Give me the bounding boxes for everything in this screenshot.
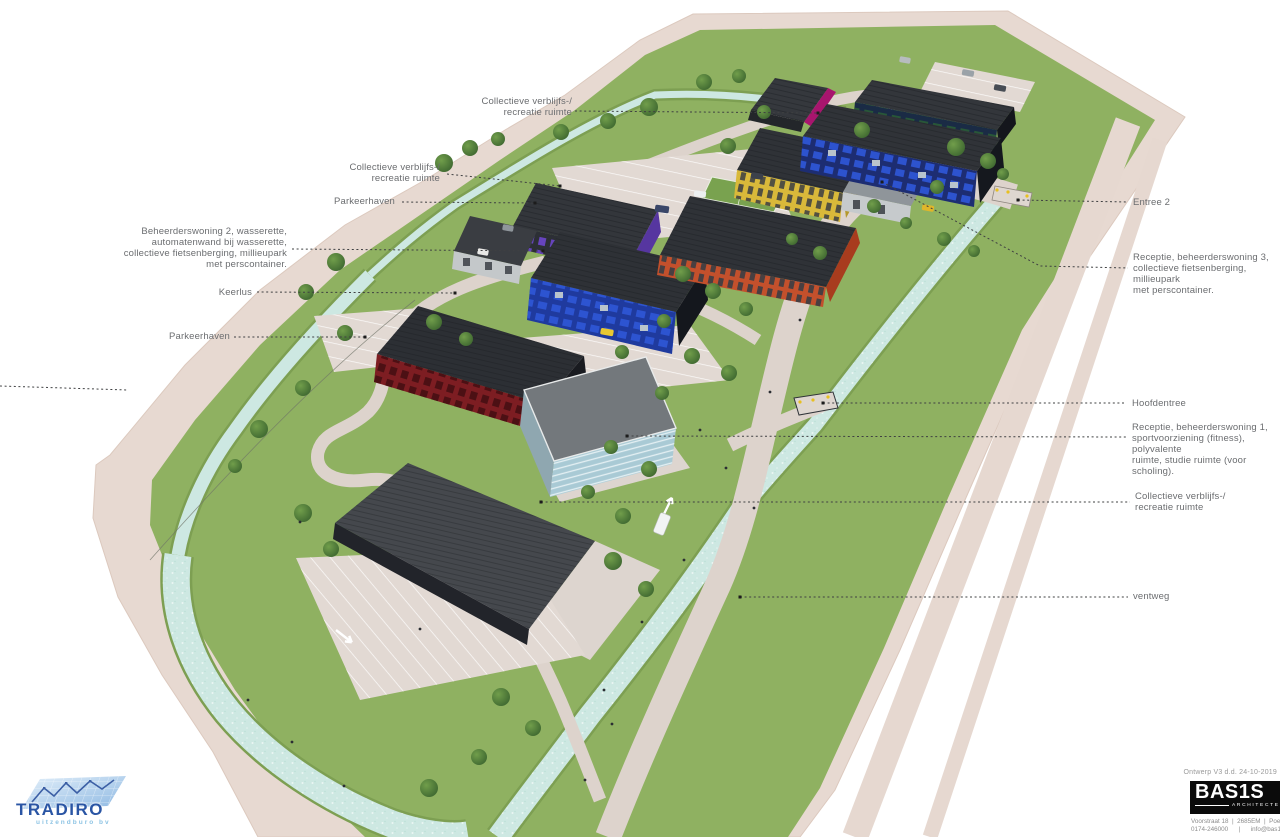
architect-address: Voorstraat 18 | 2685EM | Poeld 0174-2460…	[1191, 818, 1280, 834]
annotation-keerlus: Keerlus	[155, 287, 252, 298]
annotation-beheerderswoning-1: Receptie, beheerderswoning 1, sportvoorz…	[1132, 422, 1280, 477]
annotation-parkeerhaven-2: Parkeerhaven	[105, 331, 230, 342]
site-plan-page: Collectieve verblijfs-/ recreatie ruimte…	[0, 0, 1280, 837]
version-note: Ontwerp V3 d.d. 24-10-2019	[1140, 769, 1277, 776]
annotation-collective-space-right: Collectieve verblijfs-/ recreatie ruimte	[1135, 491, 1275, 513]
annotation-beheerderswoning-2: Beheerderswoning 2, wasserette, automate…	[95, 226, 287, 270]
site-plan-rendering	[0, 0, 1280, 837]
tradiro-logo: TRADIRO uitzendburo bv	[16, 774, 134, 834]
annotation-collective-space-top: Collectieve verblijfs-/ recreatie ruimte	[420, 96, 572, 118]
annotation-hoofdentree: Hoofdentree	[1132, 398, 1252, 409]
client-logo-subtitle: uitzendburo bv	[36, 819, 111, 826]
annotation-ventweg: ventweg	[1133, 591, 1233, 602]
annotation-collective-space-left: Collectieve verblijfs-/ recreatie ruimte	[288, 162, 440, 184]
annotation-entree-2: Entree 2	[1133, 197, 1253, 208]
annotation-parkeerhaven-1: Parkeerhaven	[270, 196, 395, 207]
architect-logo-subtitle: ARCHITECTEN	[1232, 803, 1280, 808]
client-logo-name: TRADIRO	[16, 800, 104, 820]
bas1s-logo: BAS1S ARCHITECTEN	[1190, 781, 1280, 814]
architect-logo-name: BAS1S	[1195, 782, 1280, 803]
logo-rule	[1195, 805, 1229, 806]
annotation-beheerderswoning-3: Receptie, beheerderswoning 3, collectiev…	[1133, 252, 1279, 296]
